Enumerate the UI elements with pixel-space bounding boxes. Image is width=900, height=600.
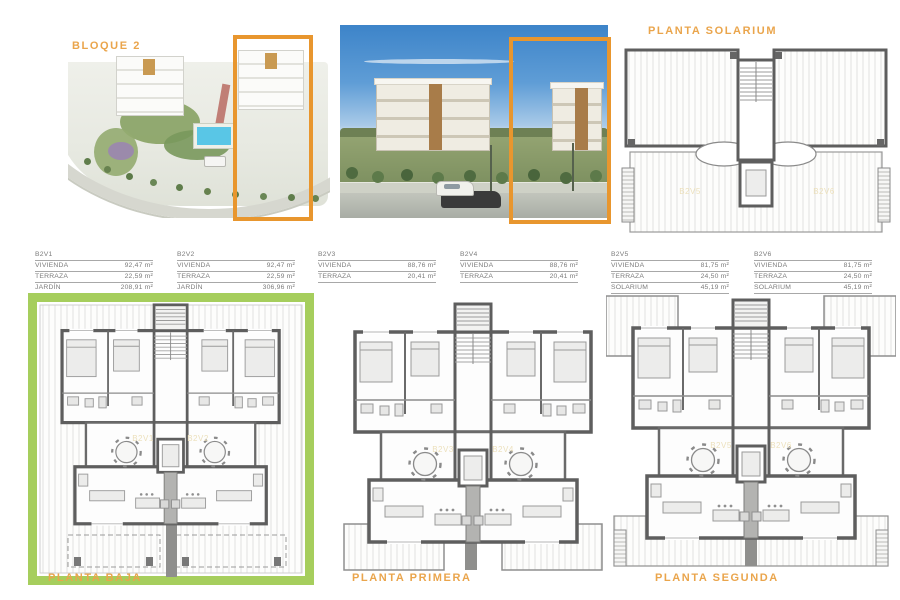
plan-solarium: B2V5 B2V6 [620, 42, 892, 238]
car [436, 181, 474, 196]
cloud [364, 59, 514, 64]
solarium-title: PLANTA SOLARIUM [648, 25, 777, 37]
table-row: VIVIENDA88,76 m² [460, 261, 578, 272]
baja-unit-right-label: B2V2 [187, 434, 209, 443]
unit-name: B2V2 [177, 250, 295, 261]
roadside-trees [84, 158, 91, 165]
streetlight-pole [490, 145, 492, 191]
bushes-row [346, 167, 358, 179]
table-row: TERRAZA22,59 m² [35, 272, 153, 283]
table-row: TERRAZA24,50 m² [754, 272, 872, 283]
unit-name: B2V3 [318, 250, 436, 261]
segunda-unit-right-label: B2V6 [770, 441, 792, 450]
segunda-title: PLANTA SEGUNDA [655, 572, 779, 584]
unit-table-b2v4: B2V4 VIVIENDA88,76 m² TERRAZA20,41 m² [460, 250, 578, 283]
plan-segunda: B2V5 B2V6 [606, 292, 896, 576]
primera-title: PLANTA PRIMERA [352, 572, 472, 584]
primera-unit-left-label: B2V3 [432, 445, 454, 454]
unit-table-b2v1: B2V1 VIVIENDA92,47 m² TERRAZA22,59 m² JA… [35, 250, 153, 294]
unit-name: B2V4 [460, 250, 578, 261]
roof-wood-accent [143, 59, 155, 75]
bloque-label: BLOQUE 2 [72, 40, 141, 52]
segunda-unit-left-label: B2V5 [710, 441, 732, 450]
highlight-box-street [509, 37, 611, 224]
unit-table-b2v6: B2V6 VIVIENDA81,75 m² TERRAZA24,50 m² SO… [754, 250, 872, 294]
apartment-building-left [376, 83, 490, 151]
entry-path [166, 525, 177, 577]
brochure-page: BLOQUE 2 PLANTA SOLARIUM [0, 0, 900, 600]
building-block-left [116, 56, 184, 116]
table-row: VIVIENDA92,47 m² [35, 261, 153, 272]
landscaping-flowers [108, 142, 134, 160]
baja-title: PLANTA BAJA [48, 572, 142, 584]
unit-table-b2v5: B2V5 VIVIENDA81,75 m² TERRAZA24,50 m² SO… [611, 250, 729, 294]
facade-wood-strip [429, 84, 442, 150]
plan-baja: B2V1 B2V2 [28, 293, 314, 585]
table-row: VIVIENDA92,47 m² [177, 261, 295, 272]
swimming-pool [194, 124, 234, 148]
table-row: VIVIENDA81,75 m² [611, 261, 729, 272]
plan-primera: B2V3 B2V4 [334, 298, 612, 576]
table-row: TERRAZA22,59 m² [177, 272, 295, 283]
solarium-unit-left-label: B2V5 [679, 187, 701, 196]
table-row: VIVIENDA88,76 m² [318, 261, 436, 272]
car-window [444, 184, 460, 189]
table-row: TERRAZA20,41 m² [318, 272, 436, 283]
table-row: VIVIENDA81,75 m² [754, 261, 872, 272]
unit-name: B2V6 [754, 250, 872, 261]
primera-unit-right-label: B2V4 [492, 445, 514, 454]
unit-name: B2V1 [35, 250, 153, 261]
car [204, 156, 226, 167]
table-row: TERRAZA20,41 m² [460, 272, 578, 283]
unit-table-b2v3: B2V3 VIVIENDA88,76 m² TERRAZA20,41 m² [318, 250, 436, 283]
highlight-box-aerial [233, 35, 313, 221]
unit-table-b2v2: B2V2 VIVIENDA92,47 m² TERRAZA22,59 m² JA… [177, 250, 295, 294]
baja-unit-left-label: B2V1 [132, 434, 154, 443]
solarium-unit-right-label: B2V6 [813, 187, 835, 196]
table-row: TERRAZA24,50 m² [611, 272, 729, 283]
unit-name: B2V5 [611, 250, 729, 261]
